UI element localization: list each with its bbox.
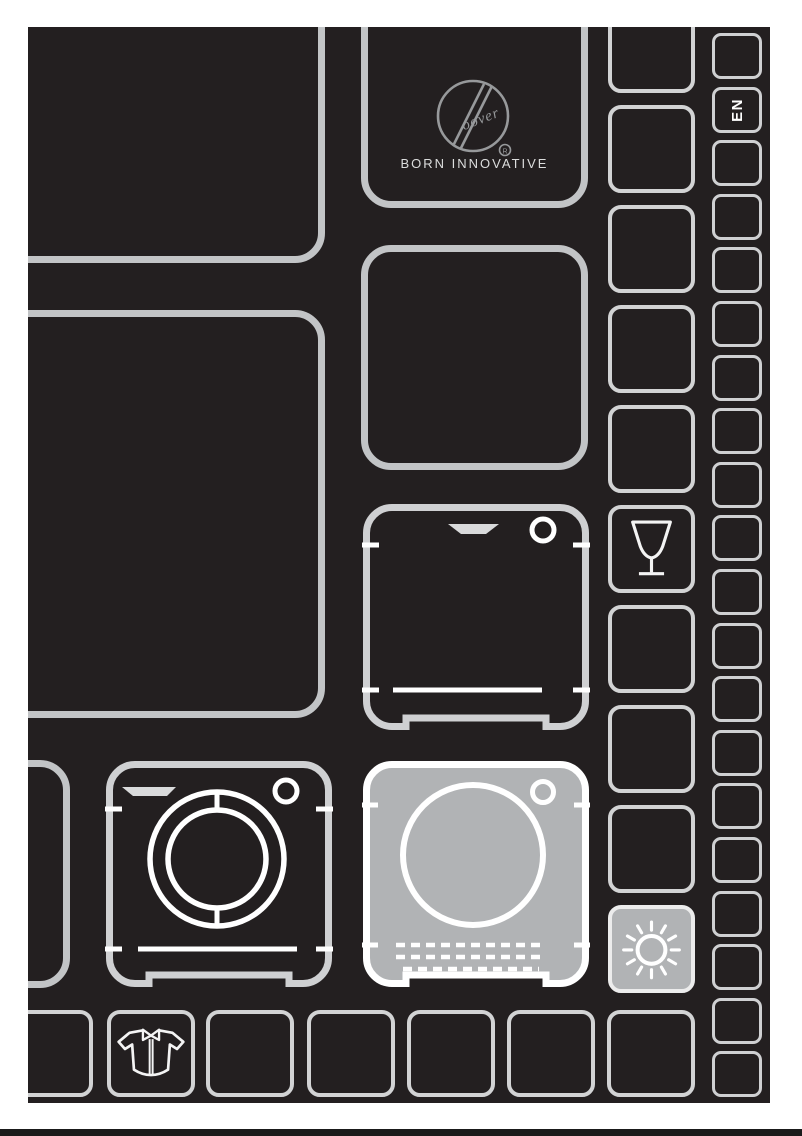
grid-tile (712, 730, 762, 776)
grid-tile (712, 247, 762, 293)
grid-tile-large (28, 310, 325, 718)
grid-tile (608, 405, 695, 493)
brand-tagline: BORN INNOVATIVE (368, 156, 581, 171)
wine-glass-icon (612, 509, 691, 589)
grid-tile (712, 837, 762, 883)
sun-icon (612, 909, 691, 989)
grid-tile (608, 205, 695, 293)
grid-tile (712, 462, 762, 508)
sun-tile (608, 905, 695, 993)
shirt-tile (107, 1010, 195, 1097)
tumble-dryer-tile (362, 760, 590, 988)
language-code-label: EN (717, 88, 757, 132)
footer-rule (0, 1129, 802, 1136)
grid-tile (712, 194, 762, 240)
dishwasher-tile (362, 503, 590, 731)
wine-glass-tile (608, 505, 695, 593)
washing-machine-icon (105, 760, 333, 988)
grid-tile (712, 891, 762, 937)
grid-tile (712, 998, 762, 1044)
grid-tile (608, 805, 695, 893)
grid-tile (712, 33, 762, 79)
manual-cover-page: oover R BORN INNOVATIVE (0, 0, 802, 1136)
dishwasher-icon (362, 503, 590, 731)
brand-logo-tile: oover R BORN INNOVATIVE (361, 27, 588, 208)
grid-tile (712, 623, 762, 669)
grid-tile (712, 676, 762, 722)
grid-tile (407, 1010, 495, 1097)
grid-tile-stub (28, 760, 70, 988)
washing-machine-tile (105, 760, 333, 988)
language-tab-en: EN (712, 87, 762, 133)
grid-tile (607, 1010, 695, 1097)
grid-tile (608, 605, 695, 693)
hoover-logo-icon: oover R (368, 27, 581, 201)
grid-tile (608, 105, 695, 193)
grid-tile (507, 1010, 595, 1097)
grid-tile (712, 783, 762, 829)
shirt-icon (111, 1014, 191, 1093)
cover-black-panel: oover R BORN INNOVATIVE (28, 27, 770, 1103)
grid-tile (608, 705, 695, 793)
grid-tile (712, 515, 762, 561)
grid-tile-large (28, 27, 325, 263)
grid-tile (712, 569, 762, 615)
grid-tile (712, 1051, 762, 1097)
grid-tile (712, 408, 762, 454)
grid-tile (712, 355, 762, 401)
svg-text:R: R (502, 149, 507, 156)
grid-tile (712, 301, 762, 347)
grid-tile (712, 140, 762, 186)
grid-tile (307, 1010, 395, 1097)
grid-tile (206, 1010, 294, 1097)
grid-tile (608, 305, 695, 393)
grid-tile (712, 944, 762, 990)
grid-tile (608, 27, 695, 93)
grid-tile-large (361, 245, 588, 470)
grid-tile-stub (28, 1010, 93, 1097)
tumble-dryer-icon (362, 760, 590, 988)
